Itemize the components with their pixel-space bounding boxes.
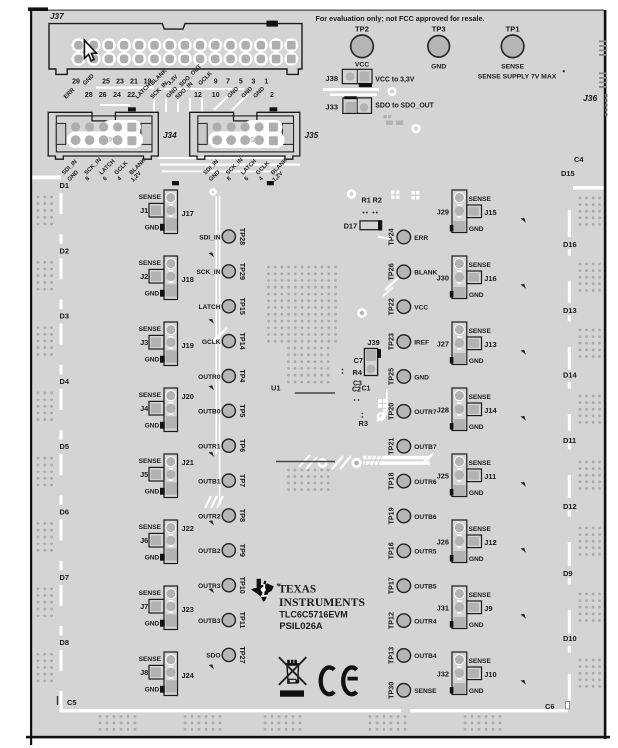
svg-text:D16: D16 <box>563 240 577 249</box>
svg-text:PSIL026A: PSIL026A <box>279 621 322 632</box>
svg-text:TP7: TP7 <box>238 474 247 487</box>
svg-text:J22: J22 <box>182 524 194 533</box>
svg-text:J35: J35 <box>250 135 262 142</box>
svg-text:IREF: IREF <box>414 339 429 346</box>
svg-text:1: 1 <box>264 79 268 86</box>
svg-text:C6: C6 <box>545 702 554 711</box>
svg-text:10: 10 <box>212 92 220 99</box>
svg-text:OUTR1: OUTR1 <box>198 444 221 451</box>
svg-text:ERR: ERR <box>414 235 428 242</box>
svg-text:GND: GND <box>469 556 484 563</box>
svg-text:SENSE: SENSE <box>139 656 162 663</box>
svg-text:J34: J34 <box>163 131 177 140</box>
svg-text:23: 23 <box>116 79 124 86</box>
svg-text:SENSE: SENSE <box>469 196 492 203</box>
svg-text:TP29: TP29 <box>238 263 247 280</box>
svg-text:D5: D5 <box>60 442 69 451</box>
svg-text:TP13: TP13 <box>387 647 396 664</box>
svg-text:D4: D4 <box>60 377 70 386</box>
svg-text:U1: U1 <box>271 384 280 393</box>
svg-text:D6: D6 <box>60 508 69 517</box>
svg-text:VCC: VCC <box>355 62 369 69</box>
svg-text:GND: GND <box>469 424 484 431</box>
svg-text:J1: J1 <box>140 206 148 215</box>
svg-text:5: 5 <box>239 79 243 86</box>
svg-text:J17: J17 <box>182 209 194 218</box>
svg-text:TP24: TP24 <box>387 228 396 245</box>
svg-text:For evaluation only; not FCC a: For evaluation only; not FCC approved fo… <box>316 14 485 23</box>
svg-text:TP30: TP30 <box>387 682 396 699</box>
svg-text:J7: J7 <box>140 602 148 611</box>
svg-text:GND: GND <box>145 423 160 430</box>
svg-text:22: 22 <box>127 92 135 99</box>
svg-text:2: 2 <box>270 92 274 99</box>
svg-text:TLC6C5716EVM: TLC6C5716EVM <box>279 610 347 621</box>
svg-text:SDO: SDO <box>206 653 220 660</box>
svg-text:GND: GND <box>469 358 484 365</box>
svg-text:GND: GND <box>469 226 484 233</box>
svg-text:SENSE: SENSE <box>469 460 492 467</box>
svg-text:C1: C1 <box>362 386 371 393</box>
svg-text:TP19: TP19 <box>387 507 396 524</box>
svg-text:J38: J38 <box>325 74 338 83</box>
svg-text:TP26: TP26 <box>387 263 396 280</box>
svg-text:29: 29 <box>72 79 80 86</box>
svg-text:J31: J31 <box>437 603 449 612</box>
svg-text:TP1: TP1 <box>506 25 521 34</box>
svg-text:J34: J34 <box>109 135 121 142</box>
svg-text:OUTB7: OUTB7 <box>414 444 437 451</box>
svg-text:J5: J5 <box>140 470 148 479</box>
svg-text:J15: J15 <box>484 208 496 217</box>
svg-text:12: 12 <box>194 92 202 99</box>
svg-text:R1 R2: R1 R2 <box>362 196 382 205</box>
svg-text:TP27: TP27 <box>238 646 247 663</box>
svg-text:INSTRUMENTS: INSTRUMENTS <box>279 595 365 609</box>
svg-text:SDI_IN: SDI_IN <box>199 234 220 241</box>
svg-text:J6: J6 <box>140 536 148 545</box>
svg-text:D7: D7 <box>60 573 69 582</box>
svg-text:GND: GND <box>469 622 484 629</box>
svg-text:J35: J35 <box>305 131 319 140</box>
svg-text:SENSE: SENSE <box>139 392 162 399</box>
svg-text:26: 26 <box>99 92 107 99</box>
svg-text:OUTB5: OUTB5 <box>414 584 437 591</box>
svg-text:J20: J20 <box>182 392 194 401</box>
svg-text:TP11: TP11 <box>238 612 247 629</box>
svg-text:SCK_IN: SCK_IN <box>196 269 220 276</box>
svg-text:GND: GND <box>469 490 484 497</box>
svg-text:OUTR4: OUTR4 <box>414 618 437 625</box>
svg-text:J16: J16 <box>484 274 496 283</box>
svg-text:SENSE SUPPLY 7V MAX: SENSE SUPPLY 7V MAX <box>478 74 557 81</box>
svg-text:VCC: VCC <box>414 305 428 312</box>
svg-text:GND: GND <box>145 555 160 562</box>
svg-text:J9: J9 <box>484 604 492 613</box>
svg-text:J13: J13 <box>484 340 496 349</box>
svg-text:OUTR2: OUTR2 <box>198 513 221 520</box>
svg-text:OUTR7: OUTR7 <box>414 409 437 416</box>
svg-text:GND: GND <box>431 64 446 71</box>
svg-text:SENSE: SENSE <box>139 458 162 465</box>
svg-text:SENSE: SENSE <box>139 194 162 201</box>
svg-text:TP20: TP20 <box>387 403 396 420</box>
svg-text:SENSE: SENSE <box>469 262 492 269</box>
svg-text:GND: GND <box>469 688 484 695</box>
svg-text:GND: GND <box>145 357 160 364</box>
svg-text:TP3: TP3 <box>432 25 446 34</box>
svg-text:D8: D8 <box>60 638 69 647</box>
svg-text:SENSE: SENSE <box>139 590 162 597</box>
svg-text:C7: C7 <box>354 356 363 365</box>
svg-text:TP5: TP5 <box>238 404 247 417</box>
svg-text:J21: J21 <box>182 458 194 467</box>
svg-text:J30: J30 <box>437 273 449 282</box>
svg-text:SENSE: SENSE <box>139 260 162 267</box>
svg-text:J4: J4 <box>140 404 149 413</box>
svg-text:OUTB4: OUTB4 <box>414 653 437 660</box>
svg-text:C5: C5 <box>67 698 76 707</box>
svg-text:TP18: TP18 <box>387 472 396 489</box>
svg-text:LATCH: LATCH <box>199 304 221 311</box>
svg-text:OUTR0: OUTR0 <box>198 374 221 381</box>
svg-text:GND: GND <box>145 687 160 694</box>
svg-text:SENSE: SENSE <box>469 592 492 599</box>
svg-text:GND: GND <box>414 374 429 381</box>
svg-text:D13: D13 <box>563 306 577 315</box>
svg-text:TP8: TP8 <box>238 509 247 522</box>
svg-text:TP10: TP10 <box>238 577 247 594</box>
svg-text:TP25: TP25 <box>387 368 396 385</box>
svg-text:J8: J8 <box>140 668 148 677</box>
svg-text:D10: D10 <box>563 634 577 643</box>
svg-text:D14: D14 <box>563 371 577 380</box>
svg-text:SENSE: SENSE <box>469 328 492 335</box>
svg-text:TP4: TP4 <box>238 369 247 382</box>
svg-text:J12: J12 <box>484 538 496 547</box>
svg-text:D11: D11 <box>563 436 576 445</box>
svg-text:GND: GND <box>145 225 160 232</box>
svg-text:OUTB3: OUTB3 <box>198 618 221 625</box>
svg-text:TP15: TP15 <box>238 298 247 315</box>
svg-text:OUTR6: OUTR6 <box>414 479 437 486</box>
svg-text:TP16: TP16 <box>387 542 396 559</box>
svg-text:J25: J25 <box>437 471 449 480</box>
svg-text:TEXAS: TEXAS <box>279 582 317 596</box>
svg-text:7: 7 <box>226 79 230 86</box>
svg-text:OUTR3: OUTR3 <box>198 583 221 590</box>
svg-text:J26: J26 <box>437 537 449 546</box>
svg-text:C4: C4 <box>574 155 584 164</box>
svg-text:J29: J29 <box>437 207 449 216</box>
svg-text:TP28: TP28 <box>238 228 247 245</box>
svg-text:TP23: TP23 <box>387 333 396 350</box>
svg-text:OUTR5: OUTR5 <box>414 549 437 556</box>
svg-text:TP9: TP9 <box>238 544 247 557</box>
svg-text:OUTB6: OUTB6 <box>414 514 437 521</box>
svg-text:GND: GND <box>469 292 484 299</box>
svg-text:D1: D1 <box>60 181 69 190</box>
svg-text:SENSE: SENSE <box>501 64 525 71</box>
svg-text:TP14: TP14 <box>238 333 247 350</box>
svg-text:J28: J28 <box>437 405 449 414</box>
svg-text:J11: J11 <box>484 472 496 481</box>
svg-text:SENSE: SENSE <box>139 524 162 531</box>
svg-text:SENSE: SENSE <box>414 688 437 695</box>
svg-text:GND: GND <box>145 489 160 496</box>
svg-text:C2: C2 <box>352 387 361 394</box>
svg-text:25: 25 <box>102 79 110 86</box>
svg-text:D3: D3 <box>60 312 69 321</box>
svg-text:J27: J27 <box>437 339 449 348</box>
svg-text:3: 3 <box>251 79 255 86</box>
svg-text:J32: J32 <box>437 669 449 678</box>
svg-text:TP2: TP2 <box>355 25 369 34</box>
svg-text:24: 24 <box>113 92 121 99</box>
svg-text:D17: D17 <box>344 221 358 230</box>
svg-text:SENSE: SENSE <box>469 526 492 533</box>
svg-text:SENSE: SENSE <box>469 394 492 401</box>
svg-text:TP17: TP17 <box>387 577 396 594</box>
svg-text:J24: J24 <box>182 671 195 680</box>
svg-text:TP22: TP22 <box>387 298 396 315</box>
svg-text:D15: D15 <box>561 169 575 178</box>
svg-text:GCLK: GCLK <box>202 339 221 346</box>
svg-text:J39: J39 <box>367 338 379 347</box>
svg-text:TP6: TP6 <box>238 439 247 452</box>
svg-text:SDO to SDO_OUT: SDO to SDO_OUT <box>375 103 434 110</box>
svg-text:J23: J23 <box>182 605 194 614</box>
svg-text:J10: J10 <box>484 670 496 679</box>
svg-text:VCC to 3,3V: VCC to 3,3V <box>375 76 414 83</box>
svg-text:J2: J2 <box>140 272 148 281</box>
svg-text:BLANK: BLANK <box>414 270 437 277</box>
svg-text:J14: J14 <box>484 406 497 415</box>
svg-text:J33: J33 <box>325 103 338 112</box>
svg-text:R4: R4 <box>353 368 363 377</box>
svg-text:J36: J36 <box>583 93 597 103</box>
svg-text:28: 28 <box>85 92 93 99</box>
svg-text:J18: J18 <box>182 275 194 284</box>
svg-text:D9: D9 <box>563 569 572 578</box>
svg-text:21: 21 <box>130 79 138 86</box>
svg-text:OUTB2: OUTB2 <box>198 548 221 555</box>
svg-text:J37: J37 <box>50 12 64 21</box>
svg-text:OUTB1: OUTB1 <box>198 478 221 485</box>
svg-text:9: 9 <box>214 79 218 86</box>
svg-text:J3: J3 <box>140 338 148 347</box>
svg-text:SENSE: SENSE <box>469 658 492 665</box>
svg-text:OUTB0: OUTB0 <box>198 409 221 416</box>
svg-text:GND: GND <box>145 621 160 628</box>
svg-text:TP12: TP12 <box>387 612 396 629</box>
svg-text:R3: R3 <box>359 419 368 428</box>
svg-text:GND: GND <box>145 291 160 298</box>
svg-text:D12: D12 <box>563 502 577 511</box>
svg-text:TP21: TP21 <box>387 438 396 455</box>
svg-text:J19: J19 <box>182 341 194 350</box>
svg-text:D2: D2 <box>60 246 69 255</box>
svg-text:SENSE: SENSE <box>139 326 162 333</box>
